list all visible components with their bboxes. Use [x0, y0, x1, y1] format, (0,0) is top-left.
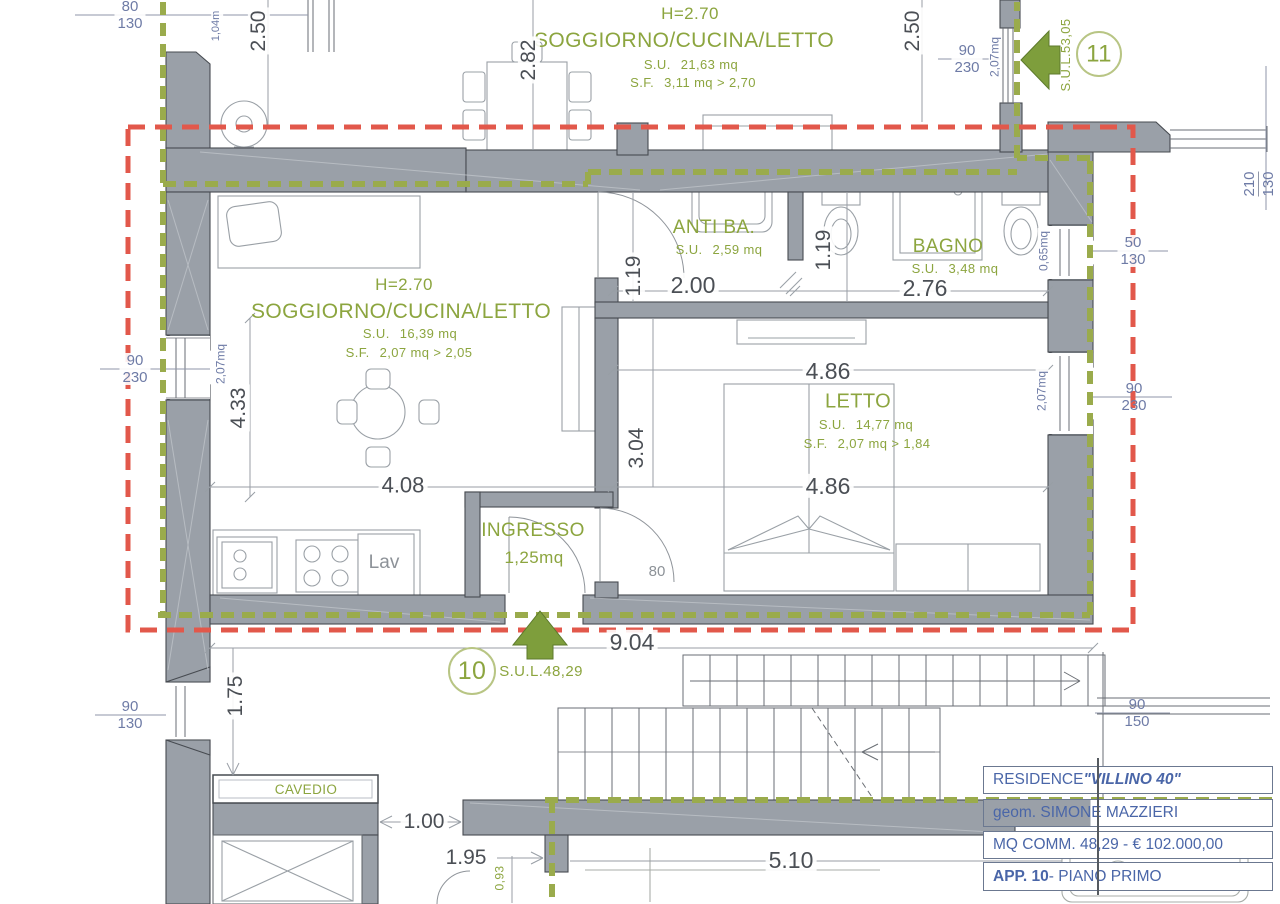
dim-window-90-130: 90130: [117, 699, 142, 731]
dim-window-210-130: 210130: [1242, 171, 1276, 196]
unit10-badge-number: 10: [458, 658, 487, 685]
dim-0-93: 0,93: [494, 863, 507, 894]
cavedio-label: CAVEDIO: [275, 783, 338, 797]
dim-window-90-150: 90150: [1124, 697, 1149, 729]
dim-window-50-130: 50130: [1117, 235, 1148, 267]
unit10-arrow-icon: [513, 611, 567, 659]
dim-2-82: 2.82: [518, 37, 540, 84]
title-block-apartment: APP. 10 - PIANO PRIMO: [983, 862, 1273, 891]
dim-window-90-230-left: 90230: [119, 353, 150, 385]
dim-window-90-230-top: 90230: [951, 43, 982, 75]
letto-name: LETTO: [825, 391, 891, 412]
soggiorno-name: SOGGIORNO/CUCINA/LETTO: [251, 301, 551, 323]
dim-4-33: 4.33: [228, 385, 250, 432]
stair-wall-line: [1097, 758, 1099, 895]
dim-window-90-230-right: 90230: [1121, 381, 1146, 413]
dim-4-08: 4.08: [379, 473, 428, 496]
dim-1-04m: 1,04m: [211, 8, 223, 45]
dim-5-10: 5.10: [766, 848, 817, 872]
upper-room-name: SOGGIORNO/CUCINA/LETTO: [534, 30, 834, 52]
upper-room-height: H=2.70: [661, 5, 719, 23]
dim-1-95: 1.95: [443, 847, 490, 869]
soggiorno-su: S.U.16,39 mq: [363, 327, 457, 341]
floor-plan-canvas: 80130 1,04m 2.50 H=2.70 SOGGIORNO/CUCINA…: [0, 0, 1280, 904]
ingresso-area: 1,25mq: [504, 549, 563, 567]
dim-2-76: 2.76: [900, 276, 951, 300]
bagno-name: BAGNO: [913, 237, 984, 257]
title-block-residence: RESIDENCE "VILLINO 40": [983, 766, 1273, 794]
dim-2-07mq-top: 2,07mq: [989, 34, 1002, 80]
letto-sf: S.F.2,07 mq > 1,84: [804, 437, 931, 451]
stairs-upper-flight: [683, 655, 1105, 706]
dim-1-19-right: 1.19: [813, 227, 835, 274]
soggiorno-sf: S.F.2,07 mq > 2,05: [346, 346, 473, 360]
furniture-letto: [724, 320, 1040, 591]
upper-room-sf: S.F.3,11 mq > 2,70: [630, 76, 756, 90]
title-block-surveyor: geom. SIMONE MAZZIERI: [983, 799, 1273, 827]
elevator-shaft: [213, 835, 362, 904]
dim-1-19-left: 1.19: [623, 253, 645, 300]
dim-0-65mq: 0,65mq: [1038, 228, 1051, 274]
title-block-price: MQ COMM. 48,29 - € 102.000,00: [983, 831, 1273, 859]
dim-door-80: 80: [649, 564, 666, 580]
unit10-sul-label: S.U.L.48,29: [499, 664, 583, 680]
unit11-arrow-icon: [1021, 31, 1060, 89]
dim-1-75: 1.75: [225, 673, 247, 720]
antibagno-name: ANTI BA.: [673, 218, 755, 238]
letto-su: S.U.14,77 mq: [819, 418, 913, 432]
upper-room-su: S.U.21,63 mq: [644, 58, 738, 72]
antibagno-su: S.U.2,59 mq: [676, 243, 763, 257]
soggiorno-height: H=2.70: [375, 276, 433, 294]
lav-label: Lav: [369, 553, 400, 573]
dim-9-04: 9.04: [607, 630, 658, 654]
dim-2-00: 2.00: [668, 273, 719, 297]
ingresso-name: INGRESSO: [481, 521, 585, 541]
dim-2-07mq-right: 2,07mq: [1036, 368, 1049, 414]
unit11-badge-number: 11: [1086, 41, 1112, 66]
unit11-sul-label: S.U.L.53,05: [1059, 18, 1073, 91]
dim-1-00: 1.00: [401, 811, 448, 833]
dim-2-07mq-left: 2,07mq: [215, 341, 228, 387]
dim-2-50-right: 2.50: [902, 8, 924, 55]
bagno-su: S.U.3,48 mq: [912, 262, 999, 276]
dim-4-86-bottom: 4.86: [803, 474, 854, 498]
dim-4-86-top: 4.86: [803, 359, 854, 383]
dim-3-04: 3.04: [626, 425, 648, 472]
dim-window-80-130: 80130: [114, 0, 145, 31]
dim-2-50-left: 2.50: [248, 8, 270, 55]
